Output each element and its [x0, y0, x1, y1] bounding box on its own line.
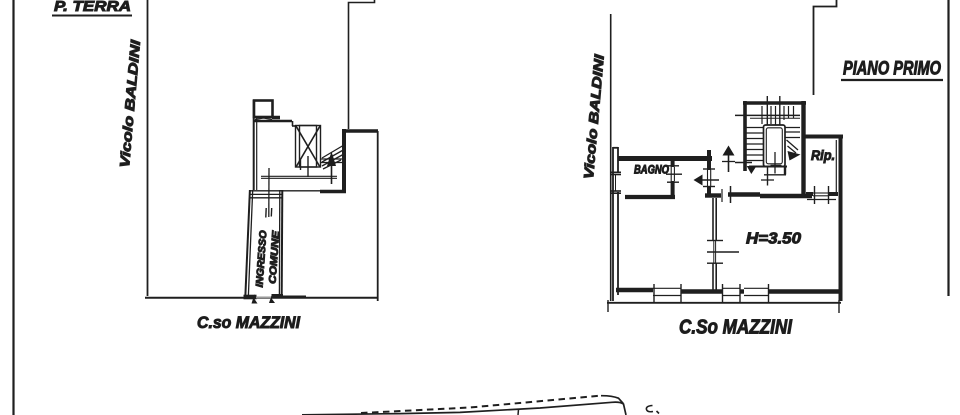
svg-text:P. TERRA: P. TERRA	[54, 0, 131, 15]
svg-text:Rip.: Rip.	[811, 148, 835, 163]
svg-text:PIANO PRIMO: PIANO PRIMO	[843, 59, 941, 80]
svg-text:H=3.50: H=3.50	[746, 231, 801, 248]
svg-text:C.so MAZZINI: C.so MAZZINI	[197, 313, 301, 332]
svg-text:BAGNO: BAGNO	[634, 165, 669, 177]
svg-text:C.So MAZZINI: C.So MAZZINI	[679, 317, 792, 339]
